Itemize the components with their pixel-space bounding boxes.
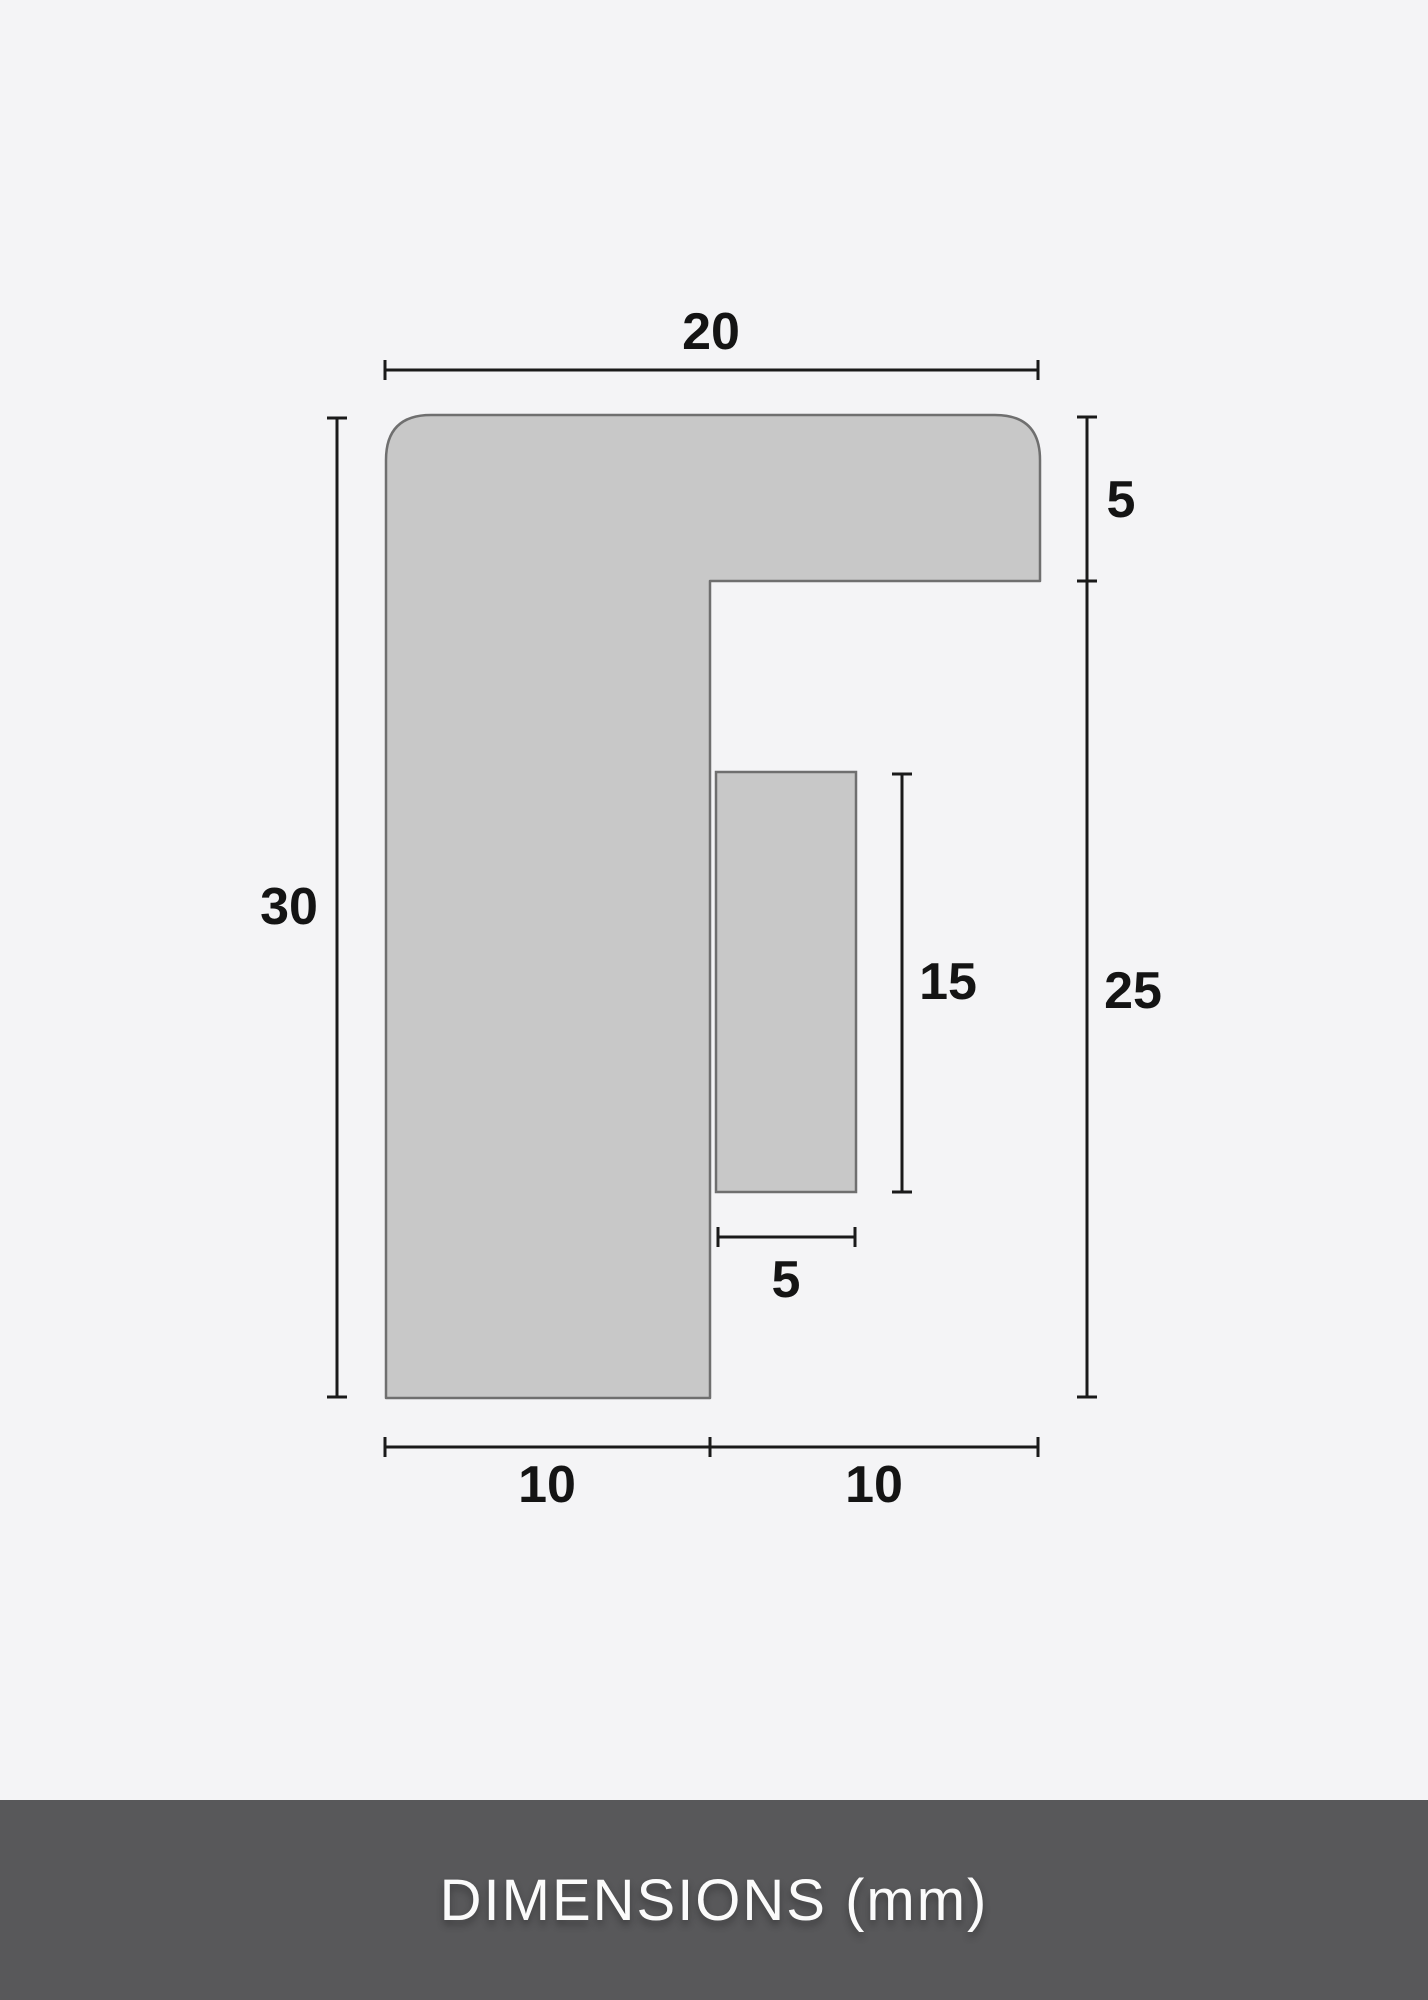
dim-top-width [385, 360, 1038, 380]
dimension-label-bottom-left-width: 10 [518, 1459, 576, 1511]
dimension-label-inner-width: 5 [772, 1254, 801, 1306]
dim-right-heights [1077, 417, 1097, 1397]
dim-inner-width [718, 1227, 855, 1247]
dimension-label-bottom-right-width: 10 [845, 1459, 903, 1511]
dim-bottom-widths [385, 1437, 1038, 1457]
footer-bar: DIMENSIONS (mm) [0, 1800, 1428, 2000]
dim-left-height [327, 418, 347, 1397]
footer-title: DIMENSIONS (mm) [440, 1867, 989, 1934]
frame-profile-dimension-diagram: 20 5 30 15 25 5 10 10 DIMENSIONS (mm) [0, 0, 1428, 2000]
dimension-label-inner-height: 15 [919, 956, 977, 1008]
dimension-label-lower-right-height: 25 [1104, 965, 1162, 1017]
dim-inner-height [892, 774, 912, 1192]
profile-rebate-block [716, 772, 856, 1192]
dimension-label-top-width: 20 [682, 306, 740, 358]
profile-main-shape [386, 415, 1040, 1398]
diagram-drawing [0, 0, 1428, 2000]
dimension-label-left-height: 30 [260, 881, 318, 933]
dimension-label-upper-right-height: 5 [1107, 474, 1136, 526]
